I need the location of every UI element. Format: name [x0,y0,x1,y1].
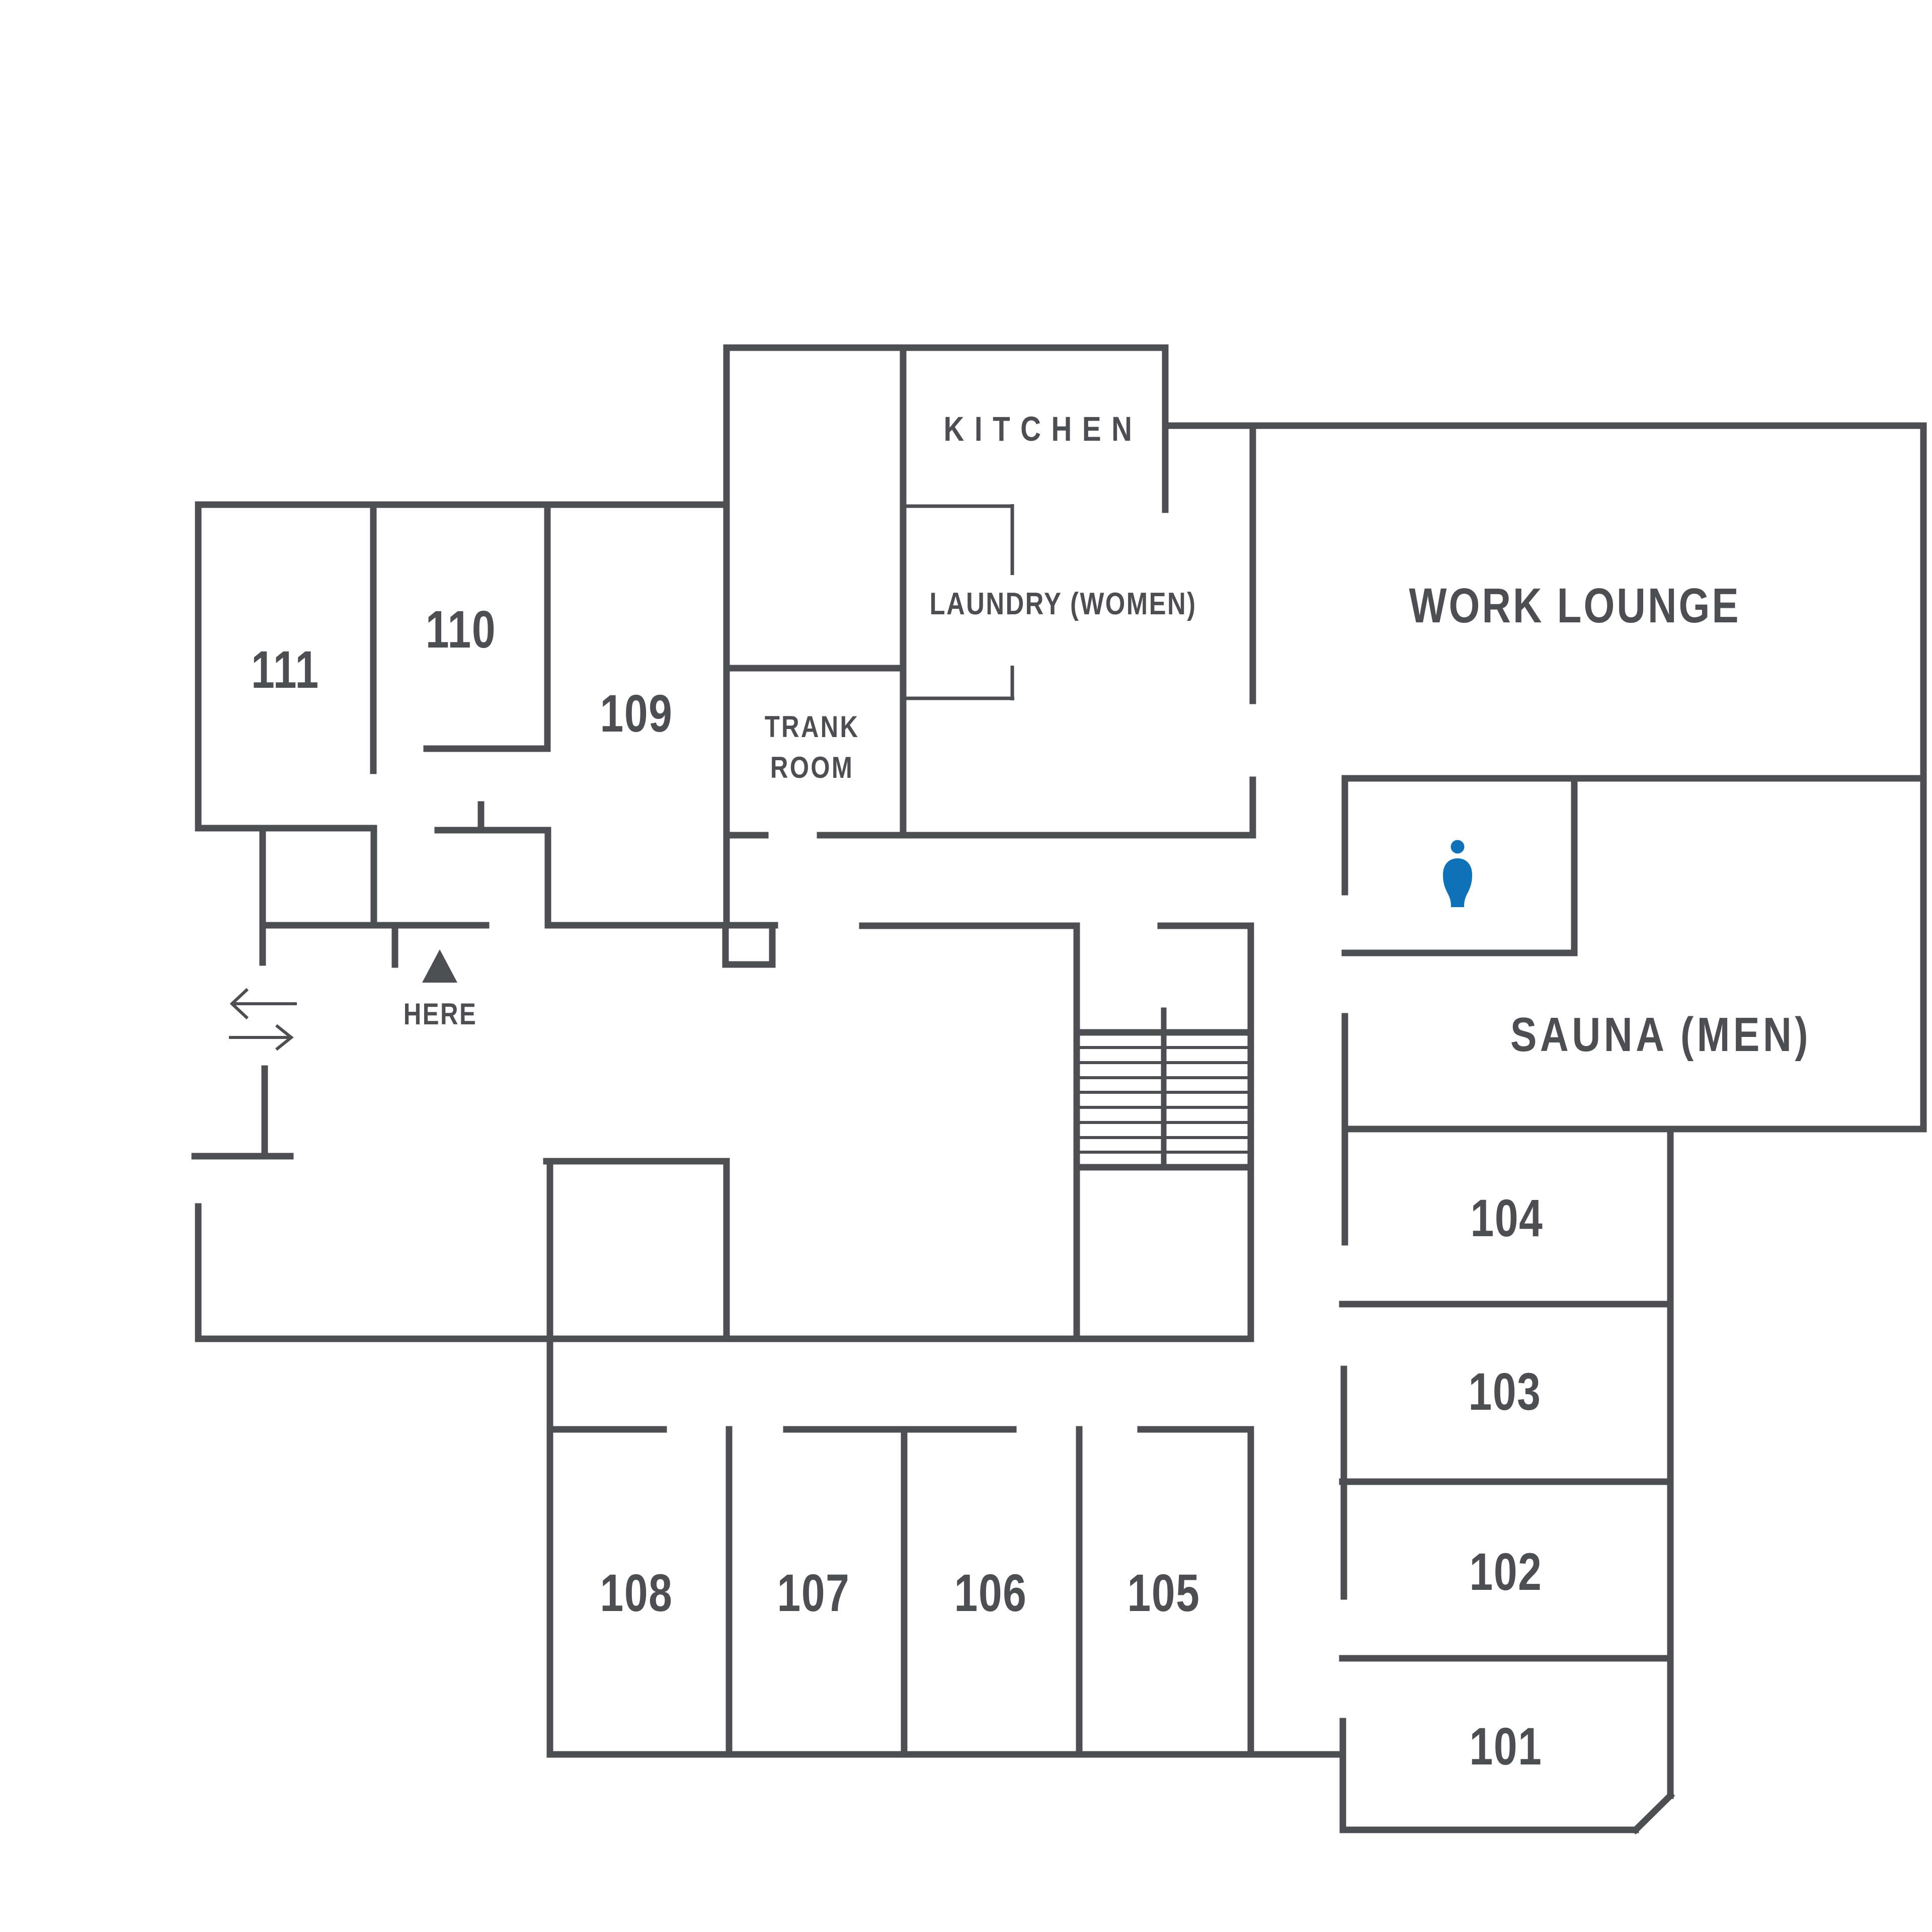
svg-text:110: 110 [426,600,496,659]
svg-text:WORK LOUNGE: WORK LOUNGE [1409,579,1740,633]
svg-text:ROOM: ROOM [770,750,854,784]
svg-text:KITCHEN: KITCHEN [944,410,1143,449]
svg-text:101: 101 [1470,1717,1543,1776]
svg-text:HERE: HERE [404,997,477,1031]
svg-text:LAUNDRY (WOMEN): LAUNDRY (WOMEN) [929,587,1196,621]
svg-text:104: 104 [1471,1189,1544,1248]
svg-text:108: 108 [600,1564,673,1623]
svg-text:102: 102 [1470,1543,1543,1601]
svg-text:SAUNA (MEN): SAUNA (MEN) [1510,1008,1811,1062]
svg-text:103: 103 [1469,1362,1542,1421]
svg-text:105: 105 [1128,1564,1200,1623]
svg-text:111: 111 [251,640,319,699]
svg-text:TRANK: TRANK [765,709,860,744]
svg-text:107: 107 [777,1564,850,1623]
svg-text:106: 106 [954,1564,1027,1623]
svg-text:109: 109 [600,684,673,743]
